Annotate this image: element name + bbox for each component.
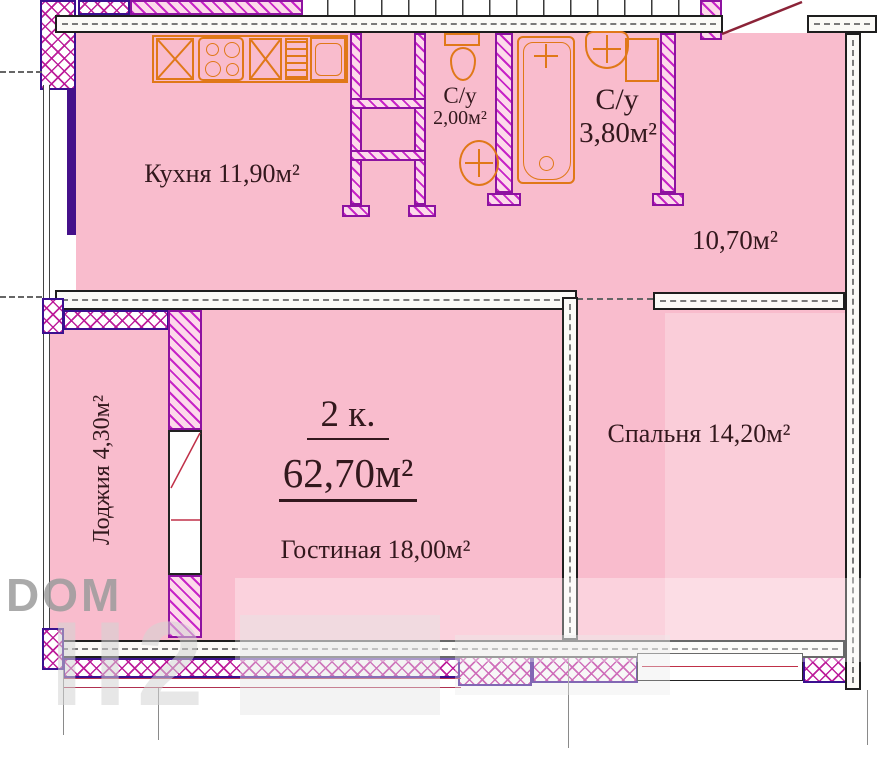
watermark-block [240,615,440,715]
drainboard-icon [285,38,308,80]
stove-icon [198,37,244,81]
dimension-line [867,690,868,745]
loggia-balcony-window [168,430,202,575]
kitchen-sink-icon [310,37,346,81]
bedroom-label: Спальня 14,20м² [560,420,838,447]
total-area-label: 62,70м² [250,452,446,502]
bath-divider-foot [487,193,521,206]
bath-small-area: 2,00м² [418,108,502,129]
vent-shaft-rung-1 [350,98,426,109]
living-label: Гостиная 18,00м² [228,536,523,563]
sink-basin [315,43,342,76]
apartment-type-text: 2 к. [307,396,390,440]
total-area-text: 62,70м² [279,452,418,502]
vent-shaft-foot-left [342,205,370,217]
axis-line-passage [577,298,653,300]
burner-icon [205,61,221,77]
burner-icon [226,63,239,76]
bath-right-foot [652,193,684,206]
kitchen-left-wall [67,88,76,235]
bath-right-wall [660,33,676,193]
toilet-tank-icon [444,33,480,46]
bedroom-top-wall [653,292,845,310]
kitchen-cabinet-icon [249,38,282,80]
bathtub-icon [517,36,575,184]
apartment-type-label: 2 к. [262,396,434,440]
watermark-band-right [665,313,845,640]
hallway-area-label: 10,70м² [655,226,815,254]
floor-plan: Кухня 11,90м² С/у 2,00м² С/у 3,80м² 10,7… [0,0,877,768]
bath-large-area: 3,80м² [548,118,688,148]
watermark-brand: DOM [6,568,122,622]
burner-icon [206,43,219,56]
kitchen-label: Кухня 11,90м² [82,160,362,187]
axis-line-left-mid [0,296,42,298]
bath-cabinet-icon [625,38,659,82]
loggia-outer-glazing [43,85,50,640]
bathtub-drain [539,156,554,171]
top-left-corner-wall [40,0,76,90]
loggia-wall-upper [168,310,202,430]
middle-wall-left-segment [55,290,577,310]
bath-large-label: С/у [572,84,662,116]
staircase-lines [300,0,728,16]
bath-small-label: С/у [425,84,495,108]
top-wall-right-segment [807,15,877,33]
burner-icon [224,42,240,58]
top-strip-crosshatch [78,0,130,15]
top-strip-hatch [130,0,303,15]
left-wall-mid-block [42,298,64,334]
washbasin-icon [459,140,499,186]
vent-shaft-foot-right [408,205,436,217]
axis-line-left-top [0,71,42,73]
watermark-block [455,635,670,695]
kitchen-cabinet-icon [156,38,194,80]
